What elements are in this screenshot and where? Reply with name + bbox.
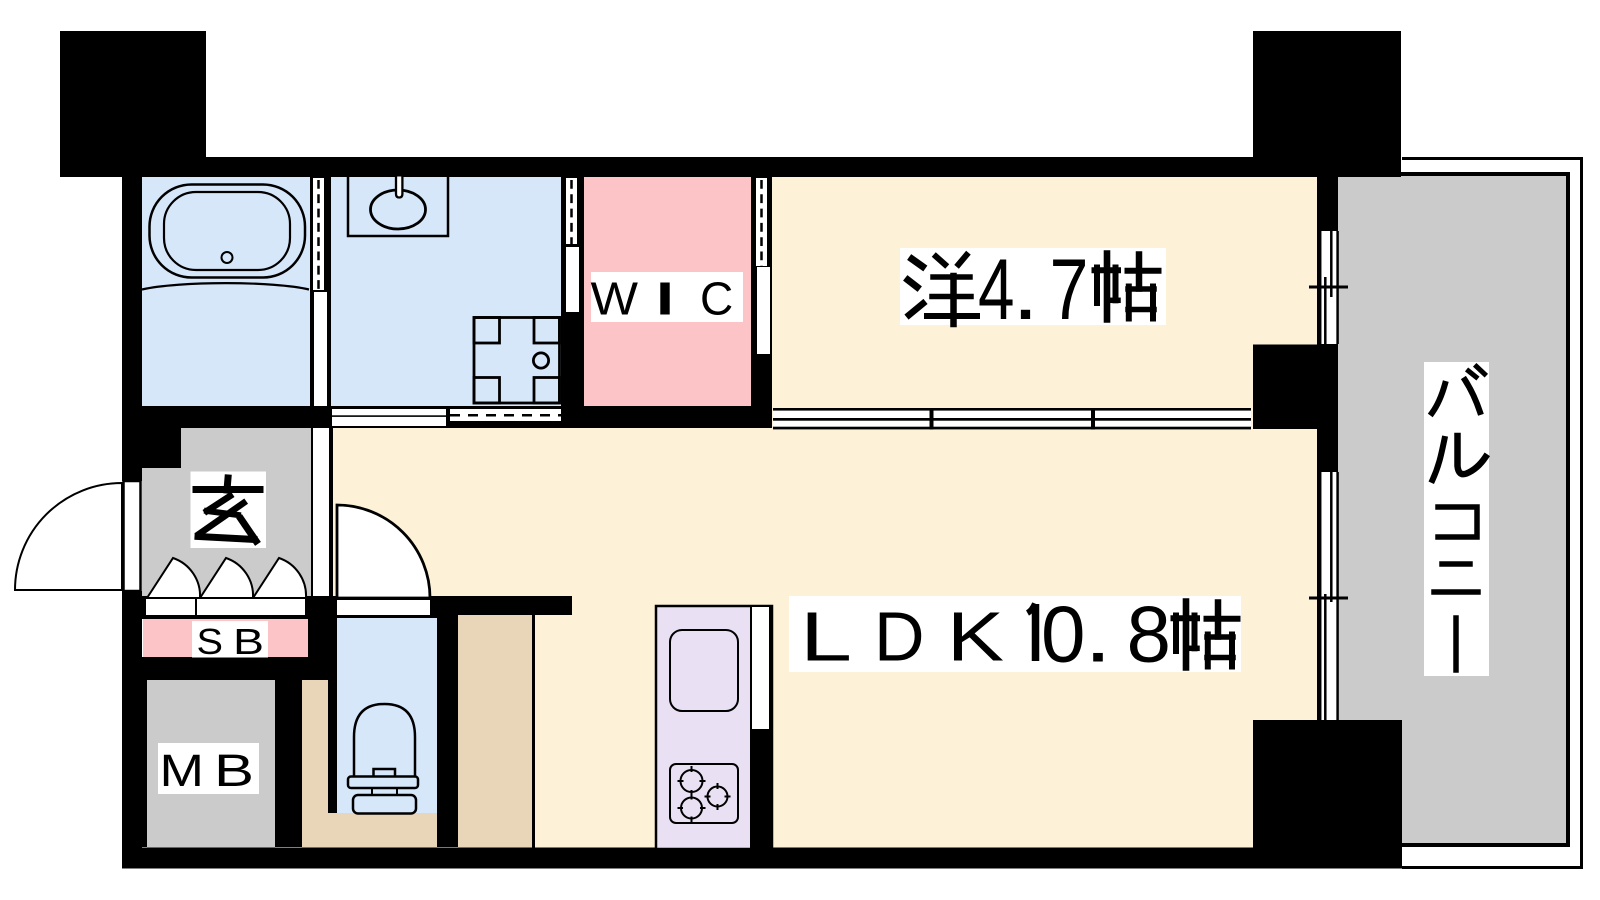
svg-text:4: 4 [978, 242, 1015, 338]
svg-text:C: C [700, 273, 733, 325]
svg-text:L: L [800, 598, 852, 676]
svg-text:B: B [233, 621, 264, 662]
svg-text:K: K [947, 598, 1004, 676]
svg-text:D: D [874, 598, 925, 676]
svg-text:B: B [214, 745, 254, 796]
svg-text:0: 0 [1041, 590, 1086, 679]
svg-text:W: W [591, 273, 639, 325]
svg-text:7: 7 [1050, 242, 1089, 338]
svg-text:S: S [197, 621, 224, 662]
svg-text:.: . [1084, 590, 1112, 679]
svg-text:.: . [1012, 242, 1039, 338]
svg-text:I: I [651, 273, 679, 325]
svg-text:M: M [160, 745, 205, 796]
svg-text:8: 8 [1127, 590, 1172, 679]
